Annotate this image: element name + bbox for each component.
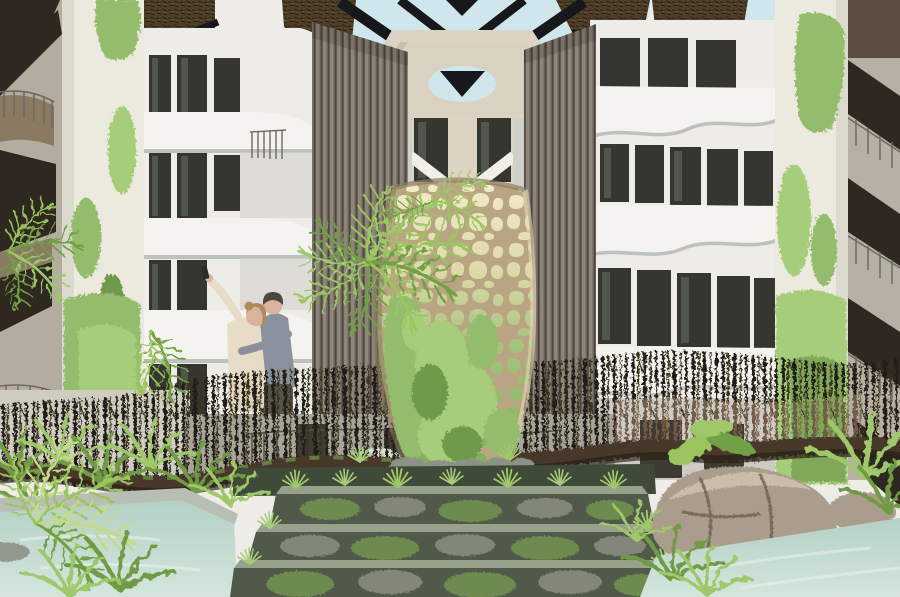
atrium-render — [0, 0, 900, 597]
step-top — [270, 486, 654, 524]
left-column — [62, 0, 144, 452]
render-canvas — [0, 0, 900, 597]
step-bottom — [230, 560, 676, 597]
step-middle — [248, 524, 666, 560]
stone-steps — [230, 486, 676, 597]
